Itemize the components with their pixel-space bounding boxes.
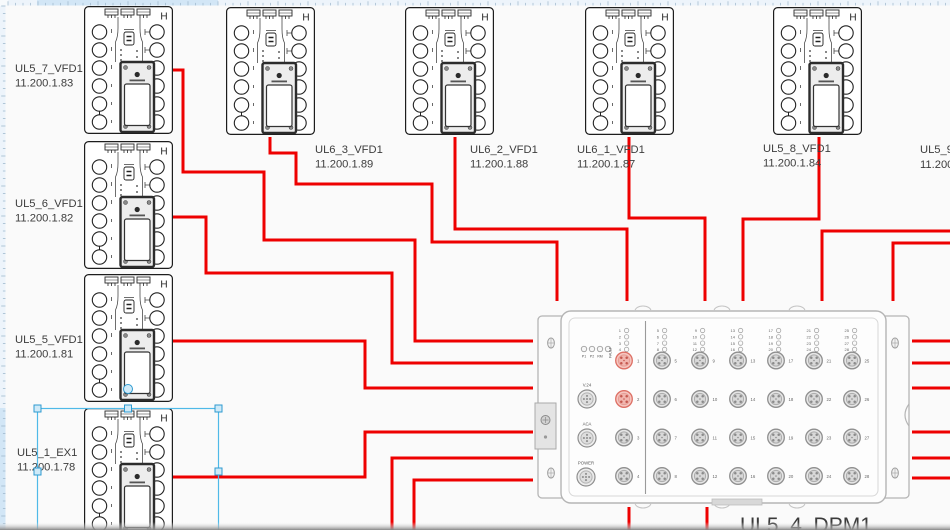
port-number-label: 12	[713, 474, 718, 479]
device-UL5_1_EX1[interactable]	[85, 409, 173, 530]
port-number-label: 26	[865, 397, 870, 402]
port-number-label: 27	[865, 436, 870, 441]
dpm-port	[692, 352, 709, 369]
svg-text:12: 12	[693, 347, 698, 352]
status-led-label-fault: FAULT	[609, 346, 613, 358]
dpm-port	[616, 391, 633, 408]
dpm-port	[730, 391, 747, 408]
svg-text:16: 16	[731, 347, 736, 352]
port-number-label: 11	[713, 436, 718, 441]
svg-text:17: 17	[769, 328, 774, 333]
svg-text:25: 25	[845, 328, 850, 333]
svg-text:V.24: V.24	[583, 382, 592, 387]
svg-text:27: 27	[845, 341, 850, 346]
port-number-label: 23	[827, 436, 832, 441]
dpm-port	[768, 429, 785, 446]
selection-handle[interactable]	[215, 405, 222, 412]
dpm-port	[730, 352, 747, 369]
selection-handle[interactable]	[125, 405, 132, 412]
svg-text:18: 18	[769, 335, 774, 340]
bottom-shadow-strip	[0, 522, 950, 530]
dpm-port	[806, 391, 823, 408]
port-number-label: 19	[789, 436, 794, 441]
svg-text:20: 20	[769, 347, 774, 352]
ground-clamp-icon	[535, 403, 556, 449]
port-number-label: 25	[865, 359, 870, 364]
dpm-port	[692, 468, 709, 485]
status-led-label: P1	[582, 355, 586, 359]
port-number-label: 18	[789, 397, 794, 402]
device-UL5_6_VFD1[interactable]	[85, 142, 173, 269]
dpm-port	[654, 429, 671, 446]
dpm-port	[806, 429, 823, 446]
dpm-port	[692, 391, 709, 408]
device-UL5_7_VFD1[interactable]	[85, 7, 173, 134]
port-number-label: 13	[751, 359, 756, 364]
svg-text:21: 21	[807, 328, 812, 333]
port-number-label: 15	[751, 436, 756, 441]
svg-text:ACA: ACA	[583, 421, 592, 426]
dpm-port	[654, 391, 671, 408]
device-UL5_8_VFD1[interactable]	[774, 8, 862, 135]
offscreen-device-name-label[interactable]: UL5_9_V	[920, 144, 950, 156]
status-led-RM	[597, 346, 602, 351]
diagram-canvas[interactable]: H	[0, 0, 950, 530]
dpm-port	[806, 352, 823, 369]
status-led-label: P2	[590, 355, 594, 359]
svg-text:14: 14	[731, 335, 736, 340]
dpm-port	[768, 391, 785, 408]
device-UL6_3_VFD1[interactable]	[227, 8, 315, 135]
svg-text:10: 10	[693, 335, 698, 340]
port-number-label: 16	[751, 474, 756, 479]
device-UL5_5_VFD1[interactable]	[85, 275, 173, 402]
dpm-port	[844, 468, 861, 485]
port-number-label: 17	[789, 359, 794, 364]
status-led-P1	[581, 346, 586, 351]
dpm-port	[806, 468, 823, 485]
port-number-label: 10	[713, 397, 718, 402]
dpm-port	[654, 352, 671, 369]
svg-text:24: 24	[807, 347, 812, 352]
device-UL6_1_VFD1[interactable]	[586, 8, 674, 135]
device-UL6_2_VFD1[interactable]	[406, 8, 494, 135]
dpm-port	[768, 352, 785, 369]
dpm-port	[844, 391, 861, 408]
dpm-port	[654, 468, 671, 485]
selection-handle[interactable]	[215, 468, 222, 475]
dpm-port	[844, 429, 861, 446]
port-number-label: 14	[751, 397, 756, 402]
svg-text:23: 23	[807, 341, 812, 346]
svg-text:13: 13	[731, 328, 736, 333]
dpm-port	[616, 468, 633, 485]
dpm-device[interactable]: P1P2RMFAULT12341234V.24ACAPOWER567856789…	[535, 306, 909, 508]
dpm-port	[768, 468, 785, 485]
status-led-label: RM	[597, 355, 603, 359]
svg-text:26: 26	[845, 335, 850, 340]
svg-text:15: 15	[731, 341, 736, 346]
port-number-label: 28	[865, 474, 870, 479]
dpm-port	[616, 429, 633, 446]
port-number-label: 20	[789, 474, 794, 479]
rotation-handle[interactable]	[124, 385, 133, 394]
dpm-port	[730, 429, 747, 446]
dpm-body[interactable]	[561, 311, 886, 503]
svg-text:28: 28	[845, 347, 850, 352]
dpm-bottom-bar	[712, 499, 762, 505]
svg-text:22: 22	[807, 335, 812, 340]
status-led-P2	[589, 346, 594, 351]
port-number-label: 24	[827, 474, 832, 479]
port-number-label: 22	[827, 397, 832, 402]
svg-text:19: 19	[769, 341, 774, 346]
dpm-port	[692, 429, 709, 446]
selection-handle[interactable]	[34, 405, 41, 412]
ruler-corner	[0, 0, 8, 6]
dpm-port	[616, 352, 633, 369]
port-number-label: 21	[827, 359, 832, 364]
selection-handle[interactable]	[34, 468, 41, 475]
svg-text:POWER: POWER	[578, 460, 594, 465]
dpm-port	[844, 352, 861, 369]
offscreen-device-ip-label[interactable]: 11.200.	[920, 159, 950, 171]
dpm-port	[730, 468, 747, 485]
dpm-aux-connector-POWER: POWER	[577, 460, 595, 486]
